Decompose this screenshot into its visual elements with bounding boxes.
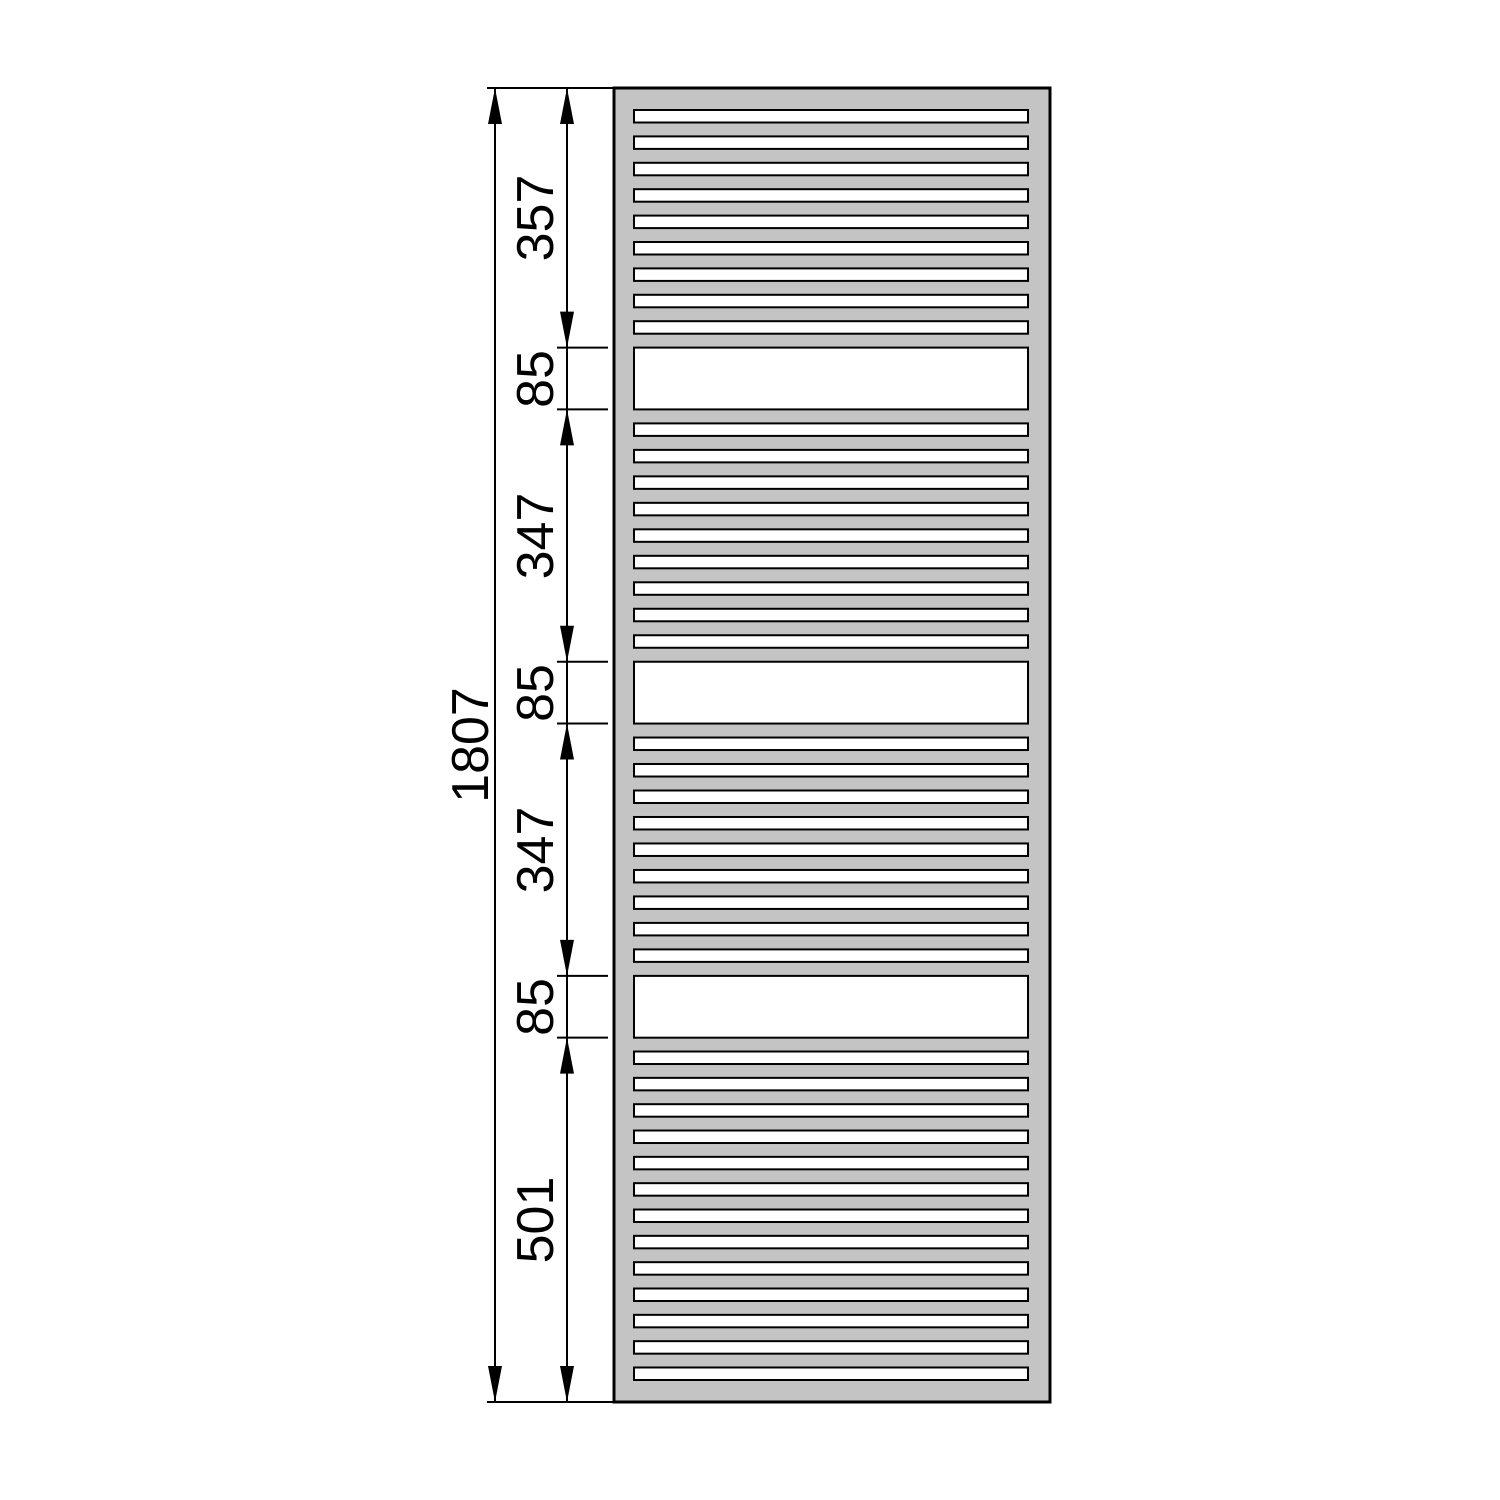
dimension-arrow-up xyxy=(560,724,574,760)
tube-gap xyxy=(634,529,1028,542)
tube-gap xyxy=(634,242,1028,255)
dimension-arrow-up xyxy=(560,1038,574,1074)
radiator-dimension-drawing: 1807 357 85 347 85 347 85 501 xyxy=(0,0,1500,1500)
drawing-geometry xyxy=(487,88,1050,1402)
dimension-label-segment-347-1: 347 xyxy=(507,493,565,580)
tube-gap xyxy=(634,790,1028,803)
tube-gap xyxy=(634,163,1028,176)
tube-gap xyxy=(634,1078,1028,1091)
tube-gap xyxy=(634,503,1028,516)
tube-gap xyxy=(634,738,1028,751)
drawing-canvas: 1807 357 85 347 85 347 85 501 xyxy=(0,0,1500,1500)
tube-gap xyxy=(634,817,1028,830)
tube-gap xyxy=(634,582,1028,595)
towel-opening-gap xyxy=(634,662,1028,724)
towel-opening-gap xyxy=(634,976,1028,1038)
dimension-label-segment-357-top: 357 xyxy=(507,175,565,262)
dimension-arrow-down xyxy=(560,626,574,662)
dimension-label-segment-347-2: 347 xyxy=(507,807,565,894)
tube-gap xyxy=(634,1341,1028,1354)
tube-gap xyxy=(634,450,1028,463)
tube-gap xyxy=(634,423,1028,436)
dimension-arrow-down xyxy=(560,1366,574,1402)
towel-opening-gap xyxy=(634,348,1028,410)
tube-gap xyxy=(634,1157,1028,1170)
tube-gap xyxy=(634,295,1028,308)
tube-gap xyxy=(634,556,1028,569)
tube-gap xyxy=(634,476,1028,489)
tube-gap xyxy=(634,189,1028,202)
dimension-label-segment-501-bottom: 501 xyxy=(507,1177,565,1264)
dimension-arrow-up xyxy=(560,409,574,445)
tube-gap xyxy=(634,1236,1028,1249)
tube-gap xyxy=(634,1131,1028,1144)
tube-gap xyxy=(634,923,1028,936)
tube-gap xyxy=(634,1368,1028,1381)
dimension-arrow-up xyxy=(488,88,502,124)
tube-gap xyxy=(634,635,1028,648)
tube-gap xyxy=(634,949,1028,962)
tube-gap xyxy=(634,1210,1028,1223)
dimension-label-segment-85-2: 85 xyxy=(507,664,565,722)
dimension-label-total: 1807 xyxy=(442,687,500,803)
tube-gap xyxy=(634,896,1028,909)
tube-gap xyxy=(634,843,1028,856)
tube-gap xyxy=(634,321,1028,334)
tube-gap xyxy=(634,764,1028,777)
tube-gap xyxy=(634,1262,1028,1275)
dimension-arrow-down xyxy=(560,940,574,976)
tube-gap xyxy=(634,1052,1028,1065)
tube-gap xyxy=(634,609,1028,622)
tube-gap xyxy=(634,1104,1028,1117)
tube-gap xyxy=(634,110,1028,123)
dimension-labels: 1807 357 85 347 85 347 85 501 xyxy=(442,175,565,1264)
dimension-arrow-down xyxy=(488,1366,502,1402)
dimension-label-segment-85-1: 85 xyxy=(507,350,565,408)
tube-gap xyxy=(634,1183,1028,1196)
dimension-arrow-up xyxy=(560,88,574,124)
tube-gap xyxy=(634,870,1028,883)
dimension-arrow-down xyxy=(560,312,574,348)
tube-gap xyxy=(634,268,1028,281)
tube-gap xyxy=(634,216,1028,229)
dimension-label-segment-85-3: 85 xyxy=(507,978,565,1036)
tube-gap xyxy=(634,136,1028,149)
tube-gap xyxy=(634,1315,1028,1328)
tube-gap xyxy=(634,1289,1028,1302)
